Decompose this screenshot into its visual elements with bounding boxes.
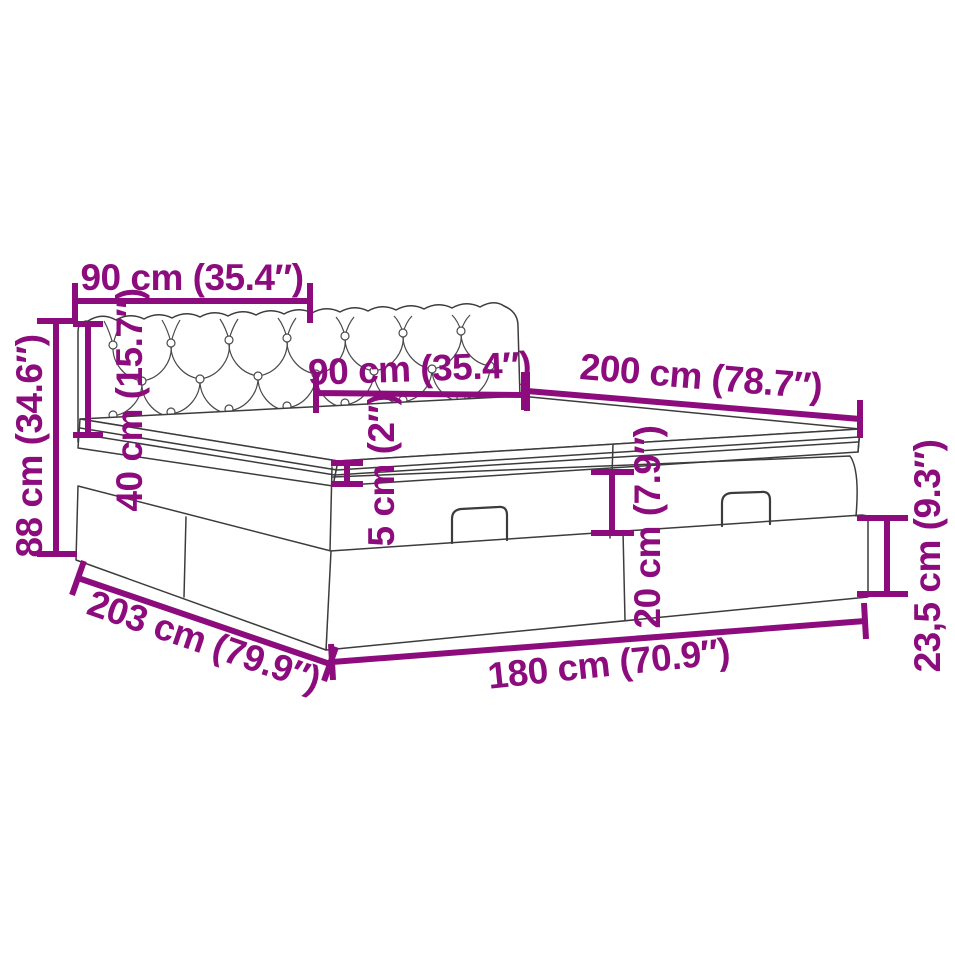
dimension-label: 40 cm (15.7″) bbox=[109, 288, 150, 511]
lower-box-split-seam bbox=[623, 531, 625, 620]
dimension-label: 5 cm (2″) bbox=[361, 393, 402, 546]
handle-right bbox=[722, 492, 770, 526]
dimension-frame-width: 180 cm (70.9″) bbox=[331, 603, 866, 697]
bed-dimension-diagram: 90 cm (35.4″) 90 cm (35.4″) 200 cm (78.7… bbox=[0, 0, 955, 955]
dimension-line bbox=[857, 518, 908, 594]
dimension-label: 20 cm (7.9″) bbox=[627, 426, 668, 629]
dimension-label: 88 cm (34.6″) bbox=[9, 334, 50, 557]
diagram-canvas: 90 cm (35.4″) 90 cm (35.4″) 200 cm (78.7… bbox=[0, 0, 955, 955]
dimension-lower-box-height: 23,5 cm (9.3″) bbox=[857, 440, 948, 673]
handle-left bbox=[452, 507, 507, 543]
dimension-total-height: 88 cm (34.6″) bbox=[9, 321, 77, 558]
dimension-label: 23,5 cm (9.3″) bbox=[907, 440, 948, 673]
dimension-label: 90 cm (35.4″) bbox=[307, 344, 531, 393]
